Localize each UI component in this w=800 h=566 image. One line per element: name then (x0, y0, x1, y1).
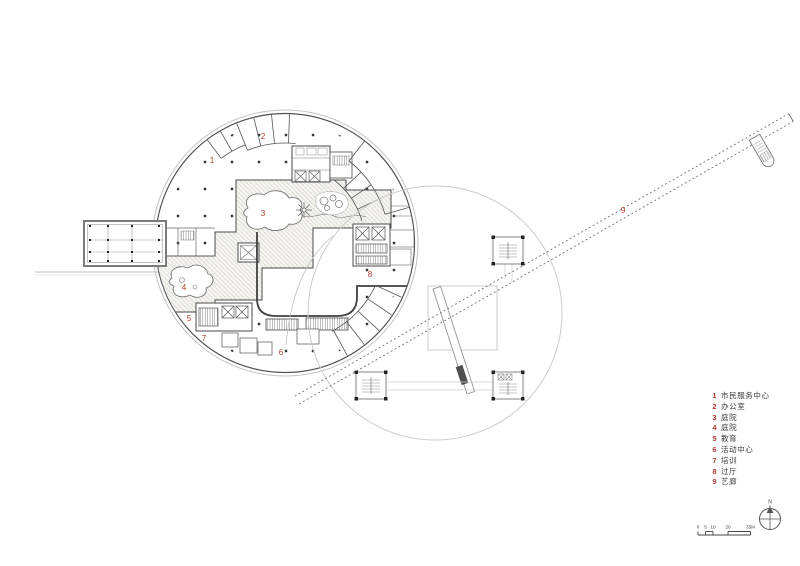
legend-item-number: 3 (711, 413, 718, 424)
legend-item-label: 过厅 (721, 467, 737, 478)
skylight (238, 243, 259, 262)
legend-item: 2 办公室 (711, 402, 770, 413)
legend-item: 4 庭院 (711, 423, 770, 434)
stair-pavilion-b (355, 371, 388, 401)
plan-label-7: 7 (202, 334, 207, 343)
scale-tick-label: 20 (725, 525, 731, 530)
plan-label-8: 8 (368, 270, 373, 279)
legend-item: 9 艺廊 (711, 477, 770, 488)
north-label: N (768, 500, 772, 506)
escalator-bank (266, 319, 298, 330)
scale-tick-label: 10 (710, 525, 716, 530)
legend-item-label: 活动中心 (721, 445, 753, 456)
scale-bar: 0 5 10 20 35M (697, 525, 755, 536)
legend-item-label: 市民服务中心 (721, 391, 770, 402)
legend: 1 市民服务中心 2 办公室 3 庭院 4 庭院 5 教育 6 活动中心 7 培… (711, 391, 770, 488)
service-core-left (196, 303, 252, 331)
north-arrow: N (760, 500, 781, 530)
stair-pavilion-a (492, 236, 525, 266)
legend-item: 7 培训 (711, 456, 770, 467)
north-arrowhead-icon (767, 507, 774, 514)
legend-item-number: 4 (711, 423, 718, 434)
scale-tick-label: 5 (704, 525, 707, 530)
legend-item-number: 7 (711, 456, 718, 467)
main-building-interior (156, 114, 419, 364)
plan-label-4: 4 (182, 283, 187, 292)
exterior-path (35, 272, 158, 275)
legend-item-number: 8 (711, 467, 718, 478)
legend-item: 3 庭院 (711, 413, 770, 424)
gallery-end-pod (749, 134, 776, 169)
plan-label-2: 2 (261, 132, 266, 141)
legend-item-number: 1 (711, 391, 718, 402)
legend-item: 1 市民服务中心 (711, 391, 770, 402)
legend-item-label: 办公室 (721, 402, 745, 413)
ramp (433, 287, 475, 395)
scale-tick-label: 35M (746, 525, 755, 530)
legend-item-label: 庭院 (721, 423, 737, 434)
plan-label-3: 3 (261, 209, 266, 218)
scale-tick-label: 0 (697, 525, 700, 530)
legend-item-number: 9 (711, 477, 718, 488)
stair-pavilion-c (492, 371, 525, 401)
legend-item-number: 5 (711, 434, 718, 445)
legend-item-label: 培训 (721, 456, 737, 467)
legend-item: 6 活动中心 (711, 445, 770, 456)
legend-item: 5 教育 (711, 434, 770, 445)
plan-label-9: 9 (621, 206, 626, 215)
escalator-bank (306, 318, 348, 330)
left-wing (84, 221, 166, 266)
plan-label-5: 5 (187, 314, 192, 323)
plan-label-1: 1 (210, 156, 215, 165)
legend-item-number: 6 (711, 445, 718, 456)
floor-plan-canvas: 1 2 3 4 5 6 7 8 9 N 0 5 10 20 35M (0, 0, 800, 566)
legend-item-label: 庭院 (721, 413, 737, 424)
legend-item: 8 过厅 (711, 467, 770, 478)
legend-item-label: 艺廊 (721, 477, 737, 488)
legend-item-label: 教育 (721, 434, 737, 445)
legend-item-number: 2 (711, 402, 718, 413)
tree-icon (296, 202, 312, 218)
screenshot-root: 1 2 3 4 5 6 7 8 9 N 0 5 10 20 35M (0, 0, 800, 566)
plan-label-6: 6 (279, 348, 284, 357)
